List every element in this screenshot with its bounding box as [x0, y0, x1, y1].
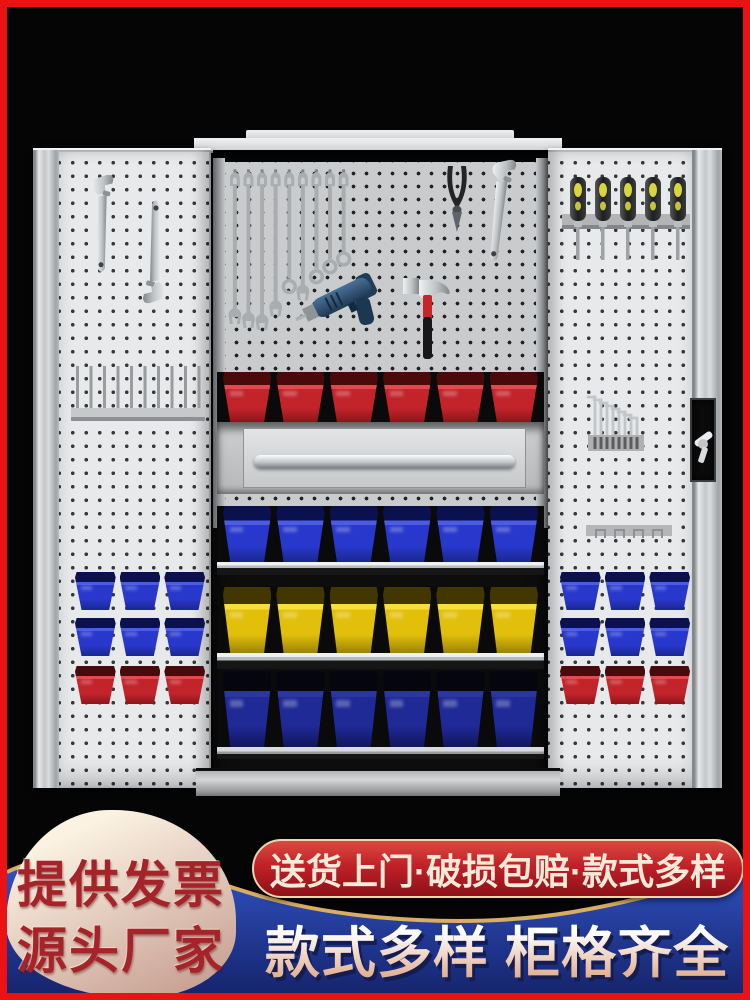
shelf — [217, 653, 544, 669]
door-red-row-bin — [560, 666, 601, 704]
left-door-edge — [33, 150, 59, 788]
hex-key-set-icon — [586, 387, 656, 459]
door-blue-row-bin — [605, 618, 646, 656]
door-blue-row-bin — [649, 572, 690, 610]
red-bins-row-bin — [490, 372, 538, 422]
door-blue-row-bin — [75, 572, 116, 610]
yellow-bins-row-bin — [330, 587, 378, 653]
red-bins-row-bin — [330, 372, 378, 422]
navy-bins-row-bin — [490, 671, 538, 747]
door-red-row-bin — [120, 666, 161, 704]
power-drill-icon — [292, 262, 402, 336]
blue-bins-row-bin — [383, 506, 431, 562]
yellow-bins-row-bin — [436, 587, 484, 653]
yellow-bins-row — [217, 587, 544, 653]
drawer — [243, 428, 526, 488]
red-bins-row-bin — [276, 372, 324, 422]
lock-handle-icon — [692, 400, 714, 480]
right-door-blue-bins-1 — [560, 572, 690, 610]
product-poster: 提供发票 源头厂家 送货上门·破损包赔·款式多样 款式多样 柜格齐全 — [0, 0, 750, 1000]
drawer-handle — [254, 455, 515, 468]
door-blue-row-bin — [120, 572, 161, 610]
right-door-blue-bins-2 — [560, 618, 690, 656]
adjustable-wrench-icon — [84, 174, 118, 278]
door-red-row-bin — [649, 666, 690, 704]
badge-line-factory: 源头厂家 — [8, 918, 234, 984]
yellow-bins-row-bin — [223, 587, 271, 653]
shelf — [217, 562, 544, 575]
navy-bins-row-bin — [330, 671, 378, 747]
badge-line-invoice: 提供发票 — [8, 852, 234, 918]
blue-bins-row — [217, 506, 544, 562]
left-door-blue-bins-2 — [75, 618, 205, 656]
red-bins-row-bin — [383, 372, 431, 422]
door-red-row-bin — [164, 666, 205, 704]
navy-bins-row-bin — [436, 671, 484, 747]
yellow-bins-row-bin — [490, 587, 538, 653]
door-blue-row-bin — [164, 572, 205, 610]
bottom-rail — [217, 747, 544, 759]
left-door-blue-bins-1 — [75, 572, 205, 610]
red-bins-row-bin — [223, 372, 271, 422]
navy-bins-row-bin — [276, 671, 324, 747]
shipping-pill: 送货上门·破损包赔·款式多样 — [252, 839, 744, 898]
yellow-bins-row-bin — [383, 587, 431, 653]
door-blue-row-bin — [164, 618, 205, 656]
door-red-row-bin — [605, 666, 646, 704]
yellow-bins-row-bin — [276, 587, 324, 653]
left-badge: 提供发票 源头厂家 — [8, 852, 234, 984]
cabinet-interior — [213, 150, 548, 770]
navy-bins-row-bin — [383, 671, 431, 747]
door-blue-row-bin — [560, 618, 601, 656]
navy-bins-row-bin — [223, 671, 271, 747]
shipping-pill-text: 送货上门·破损包赔·款式多样 — [270, 843, 726, 895]
headline: 款式多样 柜格齐全 — [250, 908, 744, 988]
blue-bins-row-bin — [330, 506, 378, 562]
door-blue-row-bin — [605, 572, 646, 610]
door-blue-row-bin — [560, 572, 601, 610]
red-bins-row-bin — [436, 372, 484, 422]
claw-hammer-icon — [400, 268, 454, 362]
blue-bins-row-bin — [436, 506, 484, 562]
pliers-icon — [435, 164, 479, 248]
door-blue-row-bin — [120, 618, 161, 656]
door-lock-handle — [690, 398, 716, 482]
right-door — [548, 148, 722, 788]
left-door-red-bins — [75, 666, 205, 704]
peg-rack-icon — [71, 364, 205, 424]
door-blue-row-bin — [75, 618, 116, 656]
right-door-red-bins — [560, 666, 690, 704]
blue-bins-row-bin — [490, 506, 538, 562]
red-bins-row — [217, 372, 544, 422]
blue-bins-row-bin — [276, 506, 324, 562]
blue-bins-row-bin — [223, 506, 271, 562]
screwdriver-set-icon — [562, 174, 690, 264]
door-red-row-bin — [75, 666, 116, 704]
adjustable-wrench-icon — [138, 194, 174, 304]
left-door — [33, 148, 211, 788]
door-blue-row-bin — [649, 618, 690, 656]
clip-rail-icon — [586, 522, 672, 542]
cabinet-base — [196, 768, 560, 796]
navy-bins-row — [217, 671, 544, 747]
drawer-band — [217, 422, 544, 494]
